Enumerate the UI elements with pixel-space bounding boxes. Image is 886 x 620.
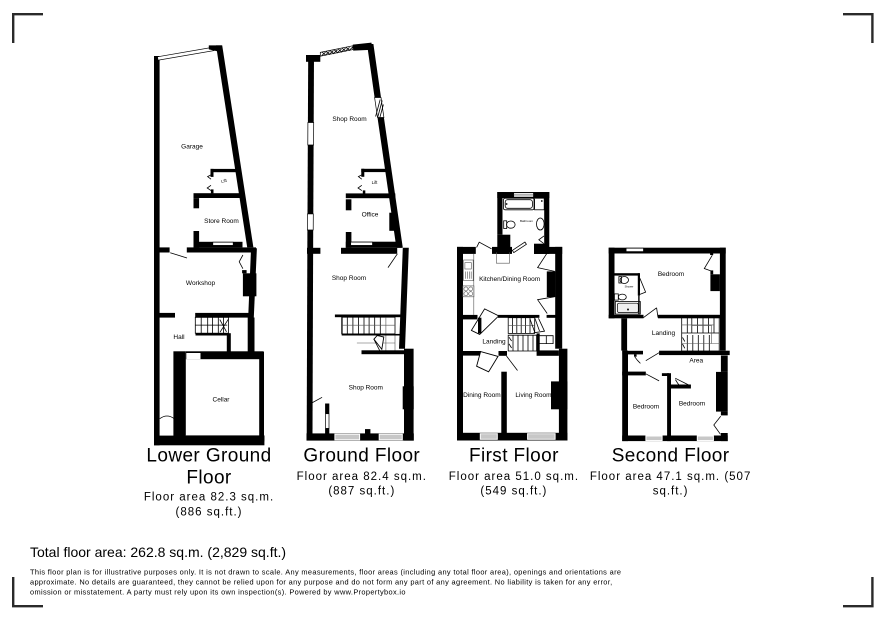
svg-text:(549 sq.ft.): (549 sq.ft.) — [480, 486, 547, 498]
svg-text:sq.ft.): sq.ft.) — [653, 486, 689, 498]
svg-text:Landing: Landing — [482, 338, 506, 345]
svg-text:Landing: Landing — [652, 330, 676, 337]
svg-text:Floor area 47.1 sq.m. (507: Floor area 47.1 sq.m. (507 — [590, 471, 752, 483]
svg-text:Store Room: Store Room — [204, 218, 239, 225]
svg-text:approximate. No details are gu: approximate. No details are guaranteed, … — [30, 577, 613, 586]
svg-text:Bedroom: Bedroom — [633, 404, 659, 411]
svg-text:Shop Room: Shop Room — [349, 384, 383, 391]
svg-text:Bathroom: Bathroom — [520, 219, 534, 223]
svg-text:Floor area 82.4 sq.m.: Floor area 82.4 sq.m. — [297, 471, 427, 483]
svg-text:Ground Floor: Ground Floor — [303, 446, 420, 467]
svg-text:Shop Room: Shop Room — [332, 116, 366, 123]
svg-text:Living Room: Living Room — [515, 392, 551, 399]
svg-text:Kitchen/Dining Room: Kitchen/Dining Room — [479, 276, 540, 283]
svg-text:(887 sq.ft.): (887 sq.ft.) — [328, 486, 395, 498]
svg-text:Hall: Hall — [173, 334, 185, 341]
svg-text:Garage: Garage — [181, 144, 203, 151]
svg-text:omission or misstatement. A pa: omission or misstatement. A party must r… — [30, 587, 406, 596]
svg-text:Lift: Lift — [221, 177, 229, 183]
svg-text:Office: Office — [362, 212, 379, 219]
svg-text:Floor area 51.0 sq.m.: Floor area 51.0 sq.m. — [449, 471, 579, 483]
svg-text:Shower: Shower — [625, 284, 634, 288]
svg-text:Dining Room: Dining Room — [463, 392, 501, 399]
svg-text:Floor: Floor — [186, 468, 232, 489]
svg-text:Second Floor: Second Floor — [612, 446, 730, 467]
svg-text:Lift: Lift — [372, 180, 379, 185]
svg-text:First Floor: First Floor — [469, 446, 559, 467]
svg-text:Lower Ground: Lower Ground — [146, 446, 271, 467]
svg-text:(886 sq.ft.): (886 sq.ft.) — [176, 507, 243, 519]
svg-text:Cellar: Cellar — [213, 397, 231, 404]
svg-text:Bedroom: Bedroom — [658, 271, 684, 278]
svg-text:Total floor area: 262.8 sq.m.: Total floor area: 262.8 sq.m. (2,829 sq.… — [30, 544, 286, 560]
svg-text:Area: Area — [689, 358, 703, 365]
svg-text:This floor plan is for illustr: This floor plan is for illustrative purp… — [30, 567, 621, 576]
svg-text:Floor area 82.3 sq.m.: Floor area 82.3 sq.m. — [144, 492, 274, 504]
svg-text:Bedroom: Bedroom — [679, 401, 705, 408]
svg-text:Workshop: Workshop — [186, 280, 216, 287]
svg-text:Shop Room: Shop Room — [332, 275, 366, 282]
